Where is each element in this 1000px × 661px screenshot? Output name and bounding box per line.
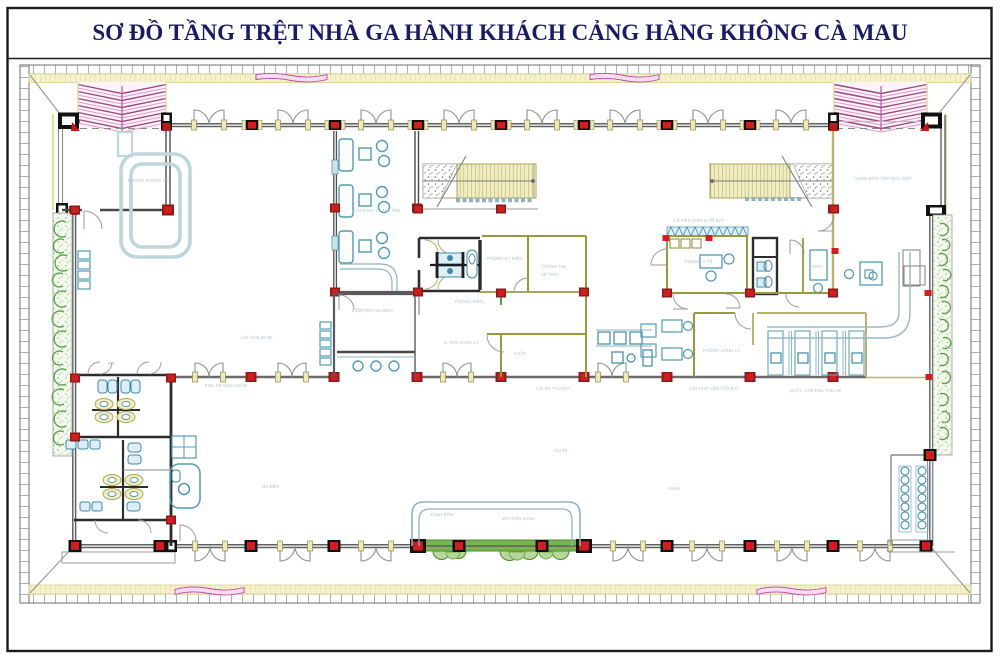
- svg-text:GIẢI KHÁT 1 - 166 7M2: GIẢI KHÁT 1 - 166 7M2: [352, 208, 401, 213]
- svg-text:KHO: KHO: [812, 264, 822, 269]
- svg-text:X. GIỎ HÀNH LÝ: X. GIỎ HÀNH LÝ: [444, 340, 479, 345]
- svg-text:THÔNG TIN: THÔNG TIN: [541, 264, 566, 269]
- svg-text:SƠ ĐỒ TẦNG TRỆT NHÀ GA HÀNH KH: SƠ ĐỒ TẦNG TRỆT NHÀ GA HÀNH KHÁCH CẢNG H…: [92, 19, 908, 45]
- svg-text:PHÒNG Y TẾ: PHÒNG Y TẾ: [685, 259, 713, 264]
- svg-text:SẢNH ĐÓN TIẾP ĐẬC BIỆT: SẢNH ĐÓN TIẾP ĐẬC BIỆT: [855, 176, 913, 181]
- svg-text:KHU VỆ SINH GA ĐI: KHU VỆ SINH GA ĐI: [205, 383, 248, 388]
- svg-text:GA ĐI: GA ĐI: [555, 448, 567, 453]
- svg-text:PHÒNG ĐIỆN: PHÒNG ĐIỆN: [455, 299, 484, 304]
- svg-text:QUẦY LÀM THỦ TỤC HK: QUẦY LÀM THỦ TỤC HK: [790, 388, 842, 393]
- svg-text:VỆ TINH: VỆ TINH: [541, 272, 559, 277]
- svg-text:PHÒNG HÀNH LÝ: PHÒNG HÀNH LÝ: [703, 348, 740, 353]
- svg-text:LỒI CHỜ LÊN TÀU BAY: LỒI CHỜ LÊN TÀU BAY: [690, 386, 739, 391]
- svg-text:SẢNH: SẢNH: [668, 486, 680, 491]
- svg-text:KIỂM TRA AN NINH: KIỂM TRA AN NINH: [352, 308, 393, 313]
- svg-text:1 2 TIỄP VIÊN & TỔ BAY: 1 2 TIỄP VIÊN & TỔ BAY: [673, 218, 725, 223]
- svg-text:LỒI RA TÀU BAY: LỒI RA TÀU BAY: [536, 386, 571, 391]
- svg-text:PHÒNG KT ĐIỆN: PHÒNG KT ĐIỆN: [487, 256, 523, 261]
- svg-text:LỒI VÀO GA ĐI: LỒI VÀO GA ĐI: [241, 335, 273, 340]
- svg-text:MÁI ĐÓN SẢNH: MÁI ĐÓN SẢNH: [502, 516, 535, 521]
- svg-text:GA ĐẾN: GA ĐẾN: [262, 484, 279, 489]
- svg-text:XUẤT: XUẤT: [514, 351, 526, 356]
- svg-text:SẢNH ĐÓN: SẢNH ĐÓN: [430, 512, 454, 517]
- svg-text:PHÒNG KHÁCH VIP: PHÒNG KHÁCH VIP: [128, 178, 170, 183]
- svg-text:WC: WC: [108, 361, 115, 366]
